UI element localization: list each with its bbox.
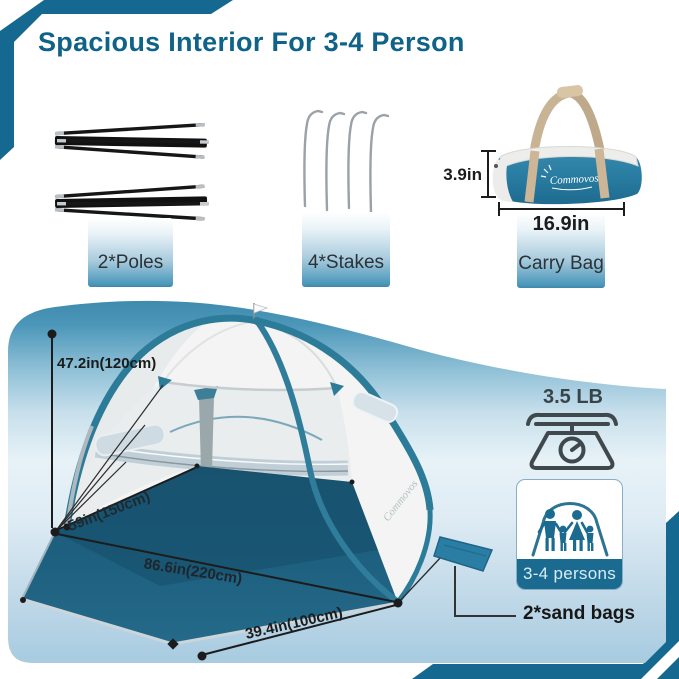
bag-height-dimension: 3.9in bbox=[428, 165, 482, 185]
sand-bags-label: 2*sand bags bbox=[523, 603, 635, 625]
stakes-label: 4*Stakes bbox=[308, 252, 384, 287]
weight-value: 3.5 LB bbox=[527, 386, 619, 409]
family-in-tent-icon bbox=[517, 480, 622, 559]
capacity-value: 3-4 persons bbox=[517, 559, 622, 589]
height-line-dot bbox=[48, 330, 57, 339]
capacity-badge: 3-4 persons bbox=[516, 479, 623, 590]
bag-length-dimension: 16.9in bbox=[517, 213, 605, 236]
pole-bundle-1 bbox=[55, 123, 209, 159]
corner-triangle bbox=[657, 657, 679, 679]
bag-strap-left bbox=[534, 93, 569, 152]
tent-height-dimension: 47.2in(120cm) bbox=[57, 355, 156, 372]
front-line-dot bbox=[198, 652, 207, 661]
poles-label-box: 2*Poles bbox=[88, 218, 173, 287]
carry-bag-label: Carry Bag bbox=[518, 253, 604, 288]
product-infographic: Commovos bbox=[0, 0, 679, 679]
pole-bundle-2 bbox=[55, 185, 209, 221]
svg-text:Commovos: Commovos bbox=[550, 172, 599, 187]
tent-stakes bbox=[304, 111, 388, 212]
bag-zipper-pull bbox=[494, 164, 498, 168]
carry-bag-illustration: Commovos bbox=[493, 84, 642, 204]
bag-strap-right bbox=[571, 93, 600, 150]
page-title: Spacious Interior For 3-4 Person bbox=[38, 27, 465, 58]
stakes-label-box: 4*Stakes bbox=[302, 212, 390, 287]
top-left-corner-band bbox=[0, 0, 233, 160]
poles-label: 2*Poles bbox=[98, 252, 164, 287]
